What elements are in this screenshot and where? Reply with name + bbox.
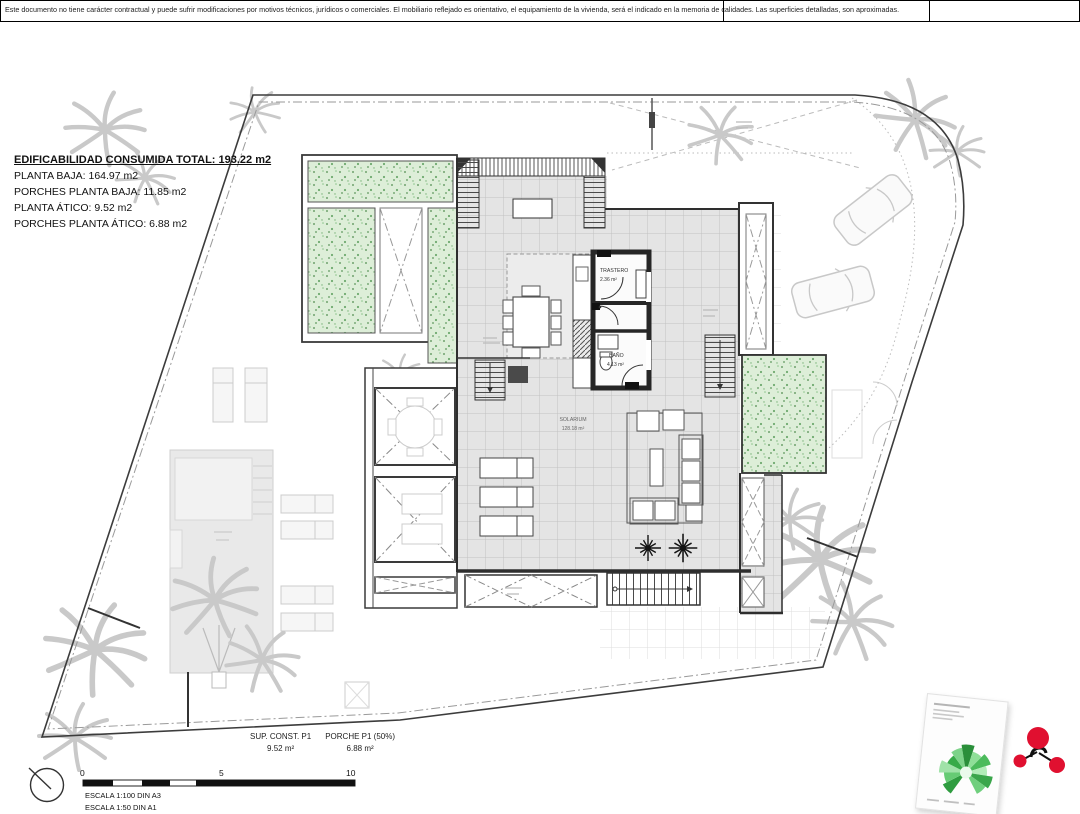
roof-planters-topleft — [302, 155, 457, 363]
disclaimer-divider — [929, 1, 930, 21]
scale-tick-0: 0 — [80, 768, 85, 778]
roof-pergolas-left — [365, 368, 457, 608]
roof-loungers — [480, 458, 533, 536]
sup-const-label: SUP. CONST. P1 — [250, 731, 311, 743]
room-area-bano: 4.13 m² — [607, 362, 624, 368]
stamp-card — [915, 693, 1009, 814]
room-area-solarium: 128.18 m² — [562, 426, 585, 432]
molecule-icon — [1012, 722, 1072, 782]
scale-tick-5: 5 — [219, 768, 224, 778]
summary-title: EDIFICABILIDAD CONSUMIDA TOTAL: 193.22 m… — [14, 152, 271, 168]
summary-line: PLANTA BAJA: 164.97 m2 — [14, 168, 271, 184]
sup-const-column: SUP. CONST. P1 9.52 m² — [250, 731, 311, 755]
scale-line-1: ESCALA 1:100 DIN A3 — [85, 791, 161, 800]
porche-value: 6.88 m² — [325, 743, 395, 755]
scale-bar: 0 5 10 ESCALA 1:100 DIN A3 ESCALA 1:50 D… — [80, 768, 356, 812]
scale-tick-10: 10 — [346, 768, 356, 778]
core-rooms: TRASTERO 2.36 m² BAÑO 4.13 m² — [592, 250, 651, 389]
room-label-solarium: SOLARIUM — [559, 417, 586, 423]
disclaimer-divider — [723, 1, 724, 21]
north-indicator-icon — [29, 768, 64, 802]
summary-block: EDIFICABILIDAD CONSUMIDA TOTAL: 193.22 m… — [14, 152, 271, 232]
totals-block: SUP. CONST. P1 9.52 m² PORCHE P1 (50%) 6… — [250, 731, 395, 755]
sup-const-value: 9.52 m² — [250, 743, 311, 755]
roof-planter-bottom — [465, 575, 597, 607]
summary-line: PLANTA ÁTICO: 9.52 m2 — [14, 200, 271, 216]
summary-line: PORCHES PLANTA ÁTICO: 6.88 m2 — [14, 216, 271, 232]
room-label-trastero: TRASTERO — [600, 268, 628, 274]
scale-line-2: ESCALA 1:50 DIN A1 — [85, 803, 157, 812]
room-area-trastero: 2.36 m² — [600, 277, 617, 283]
green-fan-logo — [937, 742, 996, 798]
disclaimer-text: Este documento no tiene carácter contrac… — [5, 5, 899, 14]
stamp-graphic — [916, 694, 1007, 814]
floor-plan-svg: TRASTERO 2.36 m² BAÑO 4.13 m² — [0, 0, 1080, 814]
porche-column: PORCHE P1 (50%) 6.88 m² — [325, 731, 395, 755]
porche-label: PORCHE P1 (50%) — [325, 731, 395, 743]
summary-line: PORCHES PLANTA BAJA: 11.85 m2 — [14, 184, 271, 200]
disclaimer-bar: Este documento no tiene carácter contrac… — [0, 0, 1080, 22]
room-label-bano: BAÑO — [609, 352, 624, 359]
plan-sheet: TRASTERO 2.36 m² BAÑO 4.13 m² — [0, 0, 1080, 814]
